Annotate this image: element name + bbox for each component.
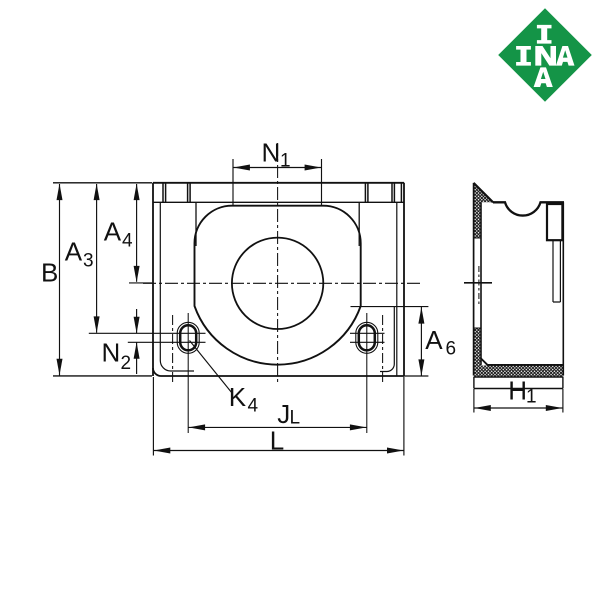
svg-text:6: 6 — [446, 339, 457, 360]
svg-text:J: J — [277, 399, 290, 429]
svg-text:H: H — [508, 376, 527, 406]
svg-text:3: 3 — [83, 251, 94, 272]
svg-text:4: 4 — [248, 396, 259, 417]
svg-text:A: A — [65, 237, 83, 267]
svg-text:4: 4 — [122, 231, 133, 252]
svg-text:2: 2 — [121, 353, 132, 374]
svg-text:N: N — [102, 338, 121, 368]
svg-text:A: A — [104, 216, 122, 246]
svg-text:L: L — [270, 426, 284, 456]
svg-text:A: A — [425, 325, 443, 355]
svg-text:N: N — [262, 138, 281, 168]
svg-text:1: 1 — [280, 151, 291, 172]
svg-text:K: K — [229, 382, 247, 412]
svg-text:B: B — [41, 258, 58, 288]
svg-text:1: 1 — [526, 387, 537, 408]
svg-text:L: L — [290, 408, 301, 429]
